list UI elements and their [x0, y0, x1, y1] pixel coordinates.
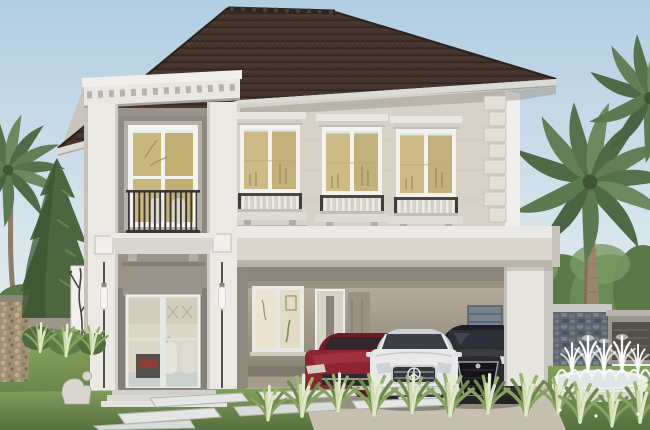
tower [84, 102, 237, 392]
tower-window [119, 116, 207, 236]
entry-doors [118, 288, 207, 392]
upper-window-3 [389, 116, 463, 231]
carport-slab-band [237, 226, 560, 267]
upper-window-2 [315, 114, 389, 229]
rendering-canvas [0, 0, 650, 430]
side-wall-sliver [505, 90, 520, 229]
upper-window-1 [233, 112, 307, 227]
carport-window [250, 286, 306, 356]
carport-post [504, 267, 553, 386]
